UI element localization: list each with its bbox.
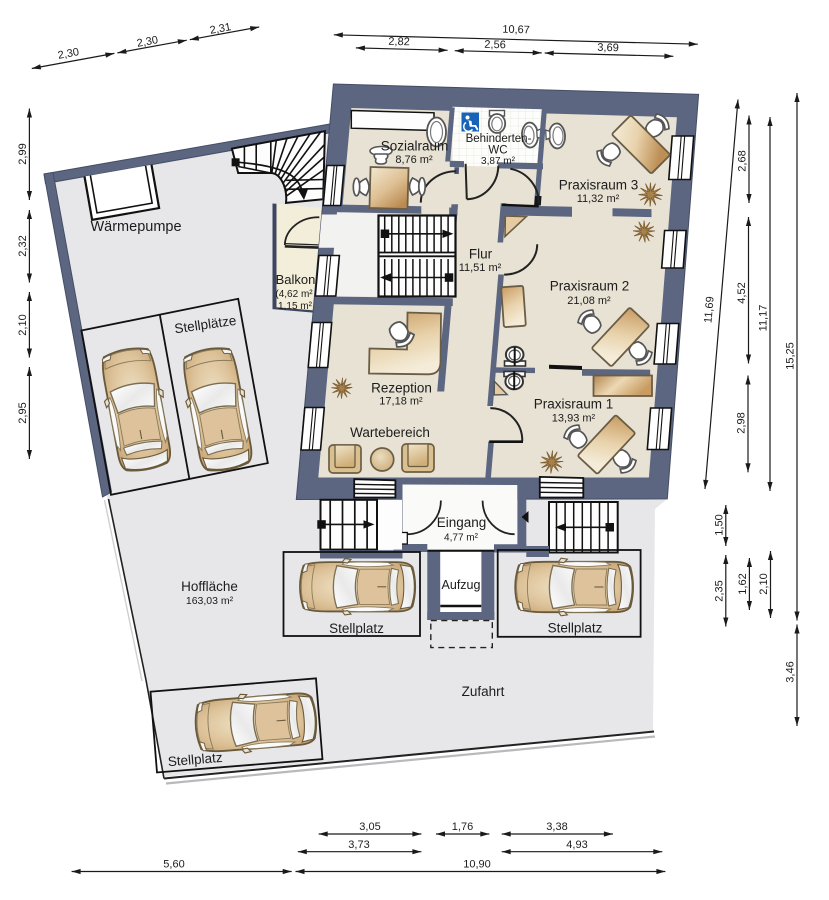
svg-text:2,10: 2,10 (758, 573, 770, 594)
svg-text:11,69: 11,69 (702, 296, 716, 324)
svg-text:2,99: 2,99 (17, 143, 29, 164)
svg-text:1,15 m²: 1,15 m² (278, 301, 313, 312)
svg-text:11,17: 11,17 (758, 305, 770, 332)
svg-text:Praxisraum 3: Praxisraum 3 (559, 178, 639, 193)
svg-text:Eingang: Eingang (437, 515, 487, 530)
svg-text:1,76: 1,76 (452, 821, 473, 833)
svg-text:4,77 m²: 4,77 m² (444, 533, 479, 544)
svg-text:10,67: 10,67 (502, 24, 530, 37)
svg-text:2,56: 2,56 (484, 39, 506, 52)
svg-text:Balkon: Balkon (276, 272, 316, 287)
svg-text:Praxisraum 2: Praxisraum 2 (550, 279, 630, 294)
svg-text:Rezeption: Rezeption (371, 381, 432, 396)
svg-text:Stellplatz: Stellplatz (329, 621, 384, 636)
svg-text:2,35: 2,35 (713, 580, 725, 601)
svg-text:3,46: 3,46 (785, 661, 797, 682)
svg-text:2,82: 2,82 (388, 36, 410, 49)
svg-text:13,93 m²: 13,93 m² (552, 413, 596, 425)
svg-text:3,73: 3,73 (348, 839, 369, 851)
svg-text:Wärmepumpe: Wärmepumpe (90, 219, 181, 235)
svg-text:3,69: 3,69 (597, 42, 619, 55)
svg-text:10,90: 10,90 (463, 859, 491, 871)
svg-text:1,50: 1,50 (713, 514, 725, 535)
svg-text:WC: WC (488, 145, 507, 157)
svg-text:Hoffläche: Hoffläche (181, 579, 238, 594)
svg-text:3,87 m²: 3,87 m² (481, 156, 516, 167)
svg-text:Aufzug: Aufzug (442, 578, 481, 592)
svg-text:11,32 m²: 11,32 m² (577, 193, 620, 205)
svg-text:3,38: 3,38 (546, 821, 567, 833)
svg-text:Flur: Flur (469, 247, 493, 262)
svg-text:Praxisraum 1: Praxisraum 1 (534, 397, 614, 412)
svg-text:2,68: 2,68 (737, 150, 749, 171)
svg-text:Wartebereich: Wartebereich (350, 425, 430, 440)
svg-text:3,05: 3,05 (359, 821, 380, 833)
svg-text:2,32: 2,32 (17, 235, 29, 256)
svg-text:4,93: 4,93 (566, 839, 587, 851)
svg-text:2,95: 2,95 (17, 402, 29, 423)
svg-text:Sozialraum: Sozialraum (381, 139, 449, 154)
svg-text:4,52: 4,52 (736, 282, 748, 303)
svg-text:15,25: 15,25 (785, 342, 797, 370)
svg-text:Behinderten-: Behinderten- (466, 133, 532, 145)
svg-text:163,03 m²: 163,03 m² (186, 595, 234, 607)
svg-text:17,18 m²: 17,18 m² (379, 396, 423, 408)
svg-text:5,60: 5,60 (163, 859, 184, 871)
svg-text:1,62: 1,62 (737, 573, 749, 594)
svg-text:11,51 m²: 11,51 m² (459, 262, 502, 274)
svg-text:2,10: 2,10 (17, 314, 29, 335)
svg-text:8,76 m²: 8,76 m² (395, 154, 433, 166)
svg-text:Stellplatz: Stellplatz (548, 621, 603, 636)
svg-text:Zufahrt: Zufahrt (462, 684, 505, 699)
svg-text:2,98: 2,98 (736, 412, 748, 433)
svg-text:(4,62 m²: (4,62 m² (275, 289, 313, 300)
svg-text:21,08 m²: 21,08 m² (567, 295, 611, 307)
